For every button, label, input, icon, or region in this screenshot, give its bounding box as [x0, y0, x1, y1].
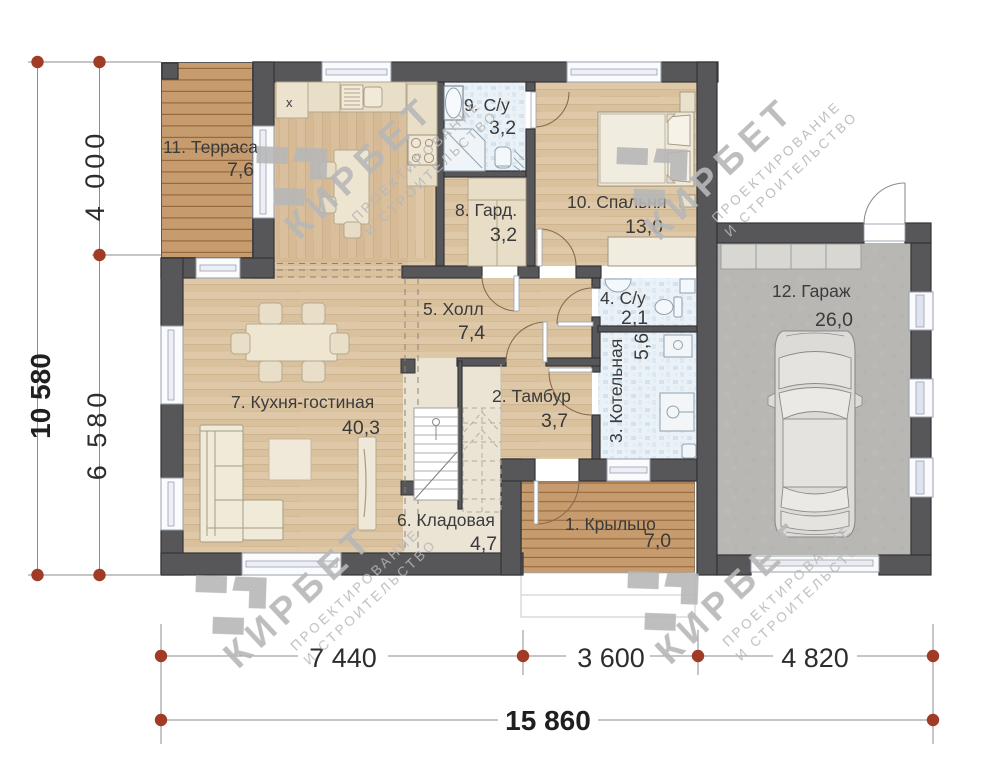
svg-text:5. Холл: 5. Холл — [423, 299, 484, 319]
svg-text:10 580: 10 580 — [25, 353, 56, 439]
svg-text:12. Гараж: 12. Гараж — [772, 281, 851, 301]
svg-text:x: x — [286, 95, 293, 110]
svg-text:7,6: 7,6 — [227, 159, 254, 181]
svg-text:4,7: 4,7 — [470, 533, 497, 555]
svg-text:40,3: 40,3 — [342, 417, 380, 439]
svg-text:11. Терраса: 11. Терраса — [163, 137, 258, 157]
svg-text:3 600: 3 600 — [577, 643, 645, 673]
svg-text:4 000: 4 000 — [80, 129, 110, 222]
svg-text:4 820: 4 820 — [781, 643, 849, 673]
svg-text:15 860: 15 860 — [505, 705, 591, 736]
svg-text:7,0: 7,0 — [644, 530, 671, 552]
svg-text:2. Тамбур: 2. Тамбур — [492, 386, 571, 406]
svg-text:26,0: 26,0 — [815, 309, 853, 331]
svg-text:6 580: 6 580 — [82, 388, 112, 481]
svg-text:7,4: 7,4 — [458, 322, 485, 344]
svg-text:3. Котельная: 3. Котельная — [606, 339, 626, 443]
svg-text:5,6: 5,6 — [631, 333, 653, 360]
svg-text:2,1: 2,1 — [621, 307, 648, 329]
svg-text:1. Крыльцо: 1. Крыльцо — [565, 514, 656, 534]
svg-text:3,7: 3,7 — [541, 410, 568, 432]
svg-text:7. Кухня-гостиная: 7. Кухня-гостиная — [231, 392, 374, 412]
svg-text:8. Гард.: 8. Гард. — [455, 200, 517, 220]
svg-text:4. С/у: 4. С/у — [600, 288, 646, 308]
svg-text:3,2: 3,2 — [490, 224, 517, 246]
